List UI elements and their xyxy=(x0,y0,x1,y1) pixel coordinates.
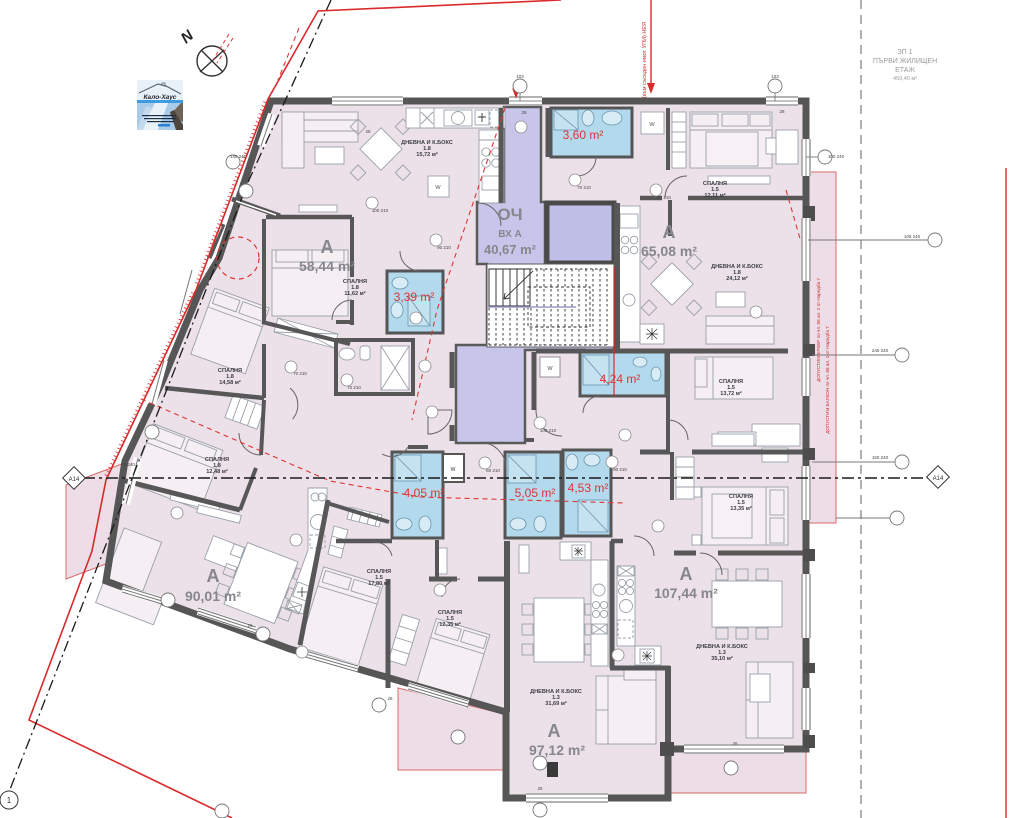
svg-text:W: W xyxy=(435,185,441,191)
svg-text:140 240: 140 240 xyxy=(230,154,247,159)
svg-text:(към съседен имот УПИ) НЕЯ: (към съседен имот УПИ) НЕЯ xyxy=(642,22,648,98)
svg-text:58,44 m²: 58,44 m² xyxy=(299,258,355,274)
svg-text:ДОПУСТИМ ЕРКЕР по чл. 86 ал. 2: ДОПУСТИМ ЕРКЕР по чл. 86 ал. 2 от Наредб… xyxy=(816,278,821,382)
svg-text:28: 28 xyxy=(779,109,785,114)
svg-text:90 210: 90 210 xyxy=(437,245,451,250)
svg-text:26: 26 xyxy=(247,623,253,628)
svg-text:103: 103 xyxy=(516,74,524,79)
svg-text:65,08 m²: 65,08 m² xyxy=(641,243,697,259)
svg-text:17,80 м²: 17,80 м² xyxy=(368,580,390,587)
svg-text:W: W xyxy=(547,366,553,372)
svg-text:ВХ А: ВХ А xyxy=(498,229,522,240)
svg-text:А: А xyxy=(321,237,334,257)
svg-text:3,60 m²: 3,60 m² xyxy=(563,128,604,142)
svg-text:100 240: 100 240 xyxy=(828,154,845,159)
svg-text:4,05 m²: 4,05 m² xyxy=(404,486,445,500)
svg-text:А14: А14 xyxy=(933,476,944,482)
svg-text:13,72 м²: 13,72 м² xyxy=(720,390,742,397)
svg-text:90,01 m²: 90,01 m² xyxy=(185,588,241,604)
svg-text:3,39 m²: 3,39 m² xyxy=(394,290,435,304)
svg-text:90 210: 90 210 xyxy=(657,195,671,200)
svg-text:28: 28 xyxy=(521,110,527,115)
svg-text:ЗП 1: ЗП 1 xyxy=(897,49,912,56)
svg-text:ЕТАЖ: ЕТАЖ xyxy=(895,67,915,74)
svg-text:13,35 м²: 13,35 м² xyxy=(730,505,752,512)
svg-text:12,11 м²: 12,11 м² xyxy=(704,192,725,199)
svg-text:12,48 м²: 12,48 м² xyxy=(206,468,228,475)
svg-text:12,35 м²: 12,35 м² xyxy=(439,621,461,628)
svg-text:31,69 м²: 31,69 м² xyxy=(545,700,567,707)
svg-text:459,40 м²: 459,40 м² xyxy=(893,76,917,82)
svg-text:80 210: 80 210 xyxy=(486,468,500,473)
svg-text:26: 26 xyxy=(732,741,738,746)
svg-text:1: 1 xyxy=(7,796,12,805)
svg-text:28: 28 xyxy=(365,129,371,134)
svg-text:А: А xyxy=(663,222,676,242)
svg-text:107,44 m²: 107,44 m² xyxy=(654,585,718,601)
svg-text:245 240: 245 240 xyxy=(872,348,889,353)
svg-text:90 210: 90 210 xyxy=(613,467,627,472)
svg-text:103: 103 xyxy=(771,74,779,79)
svg-text:75 240: 75 240 xyxy=(121,462,135,467)
svg-text:5,05 m²: 5,05 m² xyxy=(515,486,556,500)
svg-text:70 210: 70 210 xyxy=(577,185,591,190)
svg-text:14,58 м²: 14,58 м² xyxy=(219,379,241,386)
svg-text:ОЧ: ОЧ xyxy=(497,205,522,224)
svg-text:ПЪРВИ ЖИЛИЩЕН: ПЪРВИ ЖИЛИЩЕН xyxy=(873,58,937,65)
svg-text:11,62 м²: 11,62 м² xyxy=(344,290,365,297)
svg-text:26: 26 xyxy=(387,696,393,701)
svg-text:26: 26 xyxy=(537,786,543,791)
svg-text:А: А xyxy=(680,564,693,584)
svg-text:W: W xyxy=(451,467,456,473)
svg-text:15,72 м²: 15,72 м² xyxy=(416,151,438,158)
svg-text:W: W xyxy=(649,122,655,128)
svg-text:160 240: 160 240 xyxy=(872,455,889,460)
svg-text:35,10 м²: 35,10 м² xyxy=(711,655,733,662)
svg-text:Кало-Хаус: Кало-Хаус xyxy=(144,94,177,101)
svg-text:40,67 m²: 40,67 m² xyxy=(484,242,537,257)
svg-text:А14: А14 xyxy=(69,477,80,483)
svg-text:105 240: 105 240 xyxy=(904,234,921,239)
svg-text:4,53 m²: 4,53 m² xyxy=(568,481,609,495)
svg-text:4,24 m²: 4,24 m² xyxy=(600,372,641,386)
svg-text:А: А xyxy=(548,721,561,741)
svg-text:24,12 м²: 24,12 м² xyxy=(726,275,748,282)
svg-text:97,12 m²: 97,12 m² xyxy=(529,742,585,758)
svg-text:ДОПУСТИМ БАЛКОН по чл. 88 ал.: ДОПУСТИМ БАЛКОН по чл. 88 ал. 2 от Наред… xyxy=(825,326,830,434)
svg-text:А: А xyxy=(207,566,220,586)
